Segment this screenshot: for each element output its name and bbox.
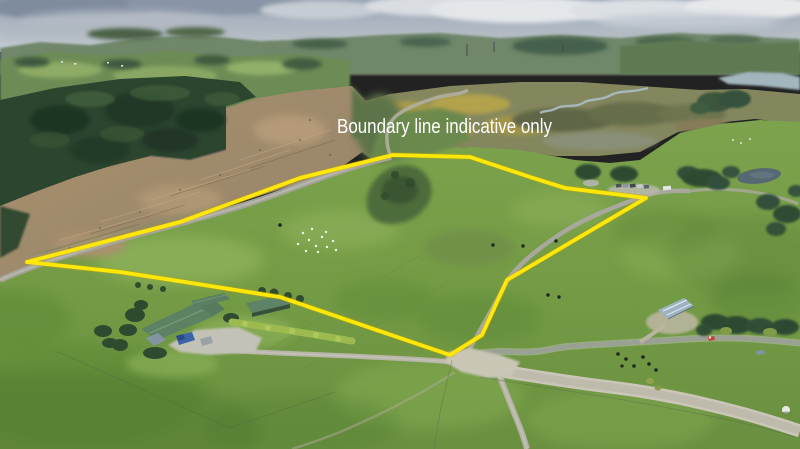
aerial-property-photo: Boundary line indicative only <box>0 0 800 449</box>
boundary-caption: Boundary line indicative only <box>337 115 553 138</box>
white-caravan <box>663 186 671 191</box>
small-dam <box>583 180 599 187</box>
